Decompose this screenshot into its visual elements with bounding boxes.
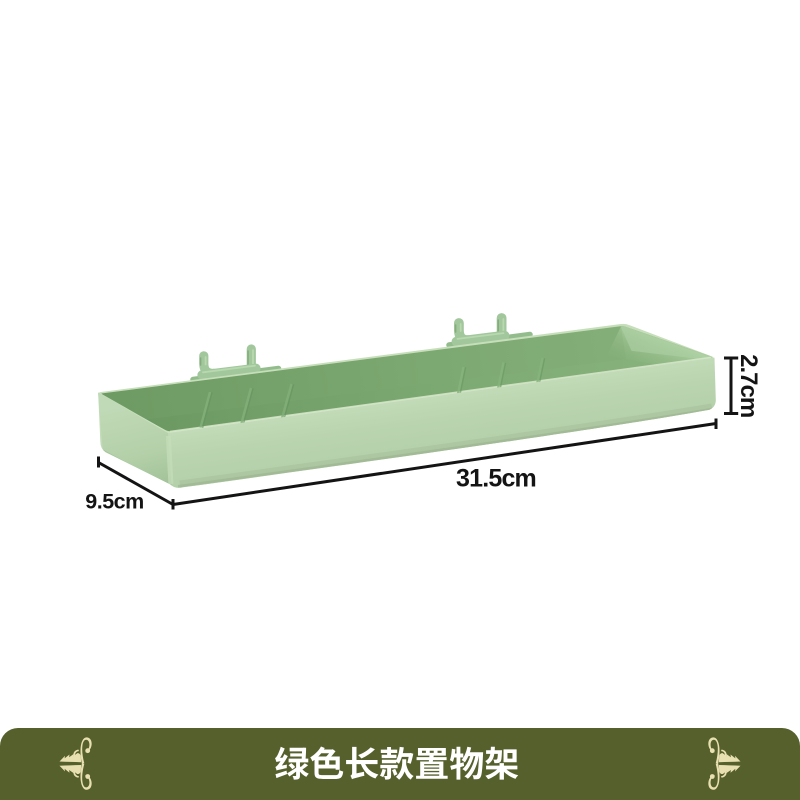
svg-text:2.7cm: 2.7cm <box>735 354 762 417</box>
svg-text:31.5cm: 31.5cm <box>456 465 536 493</box>
svg-text:9.5cm: 9.5cm <box>85 490 143 514</box>
